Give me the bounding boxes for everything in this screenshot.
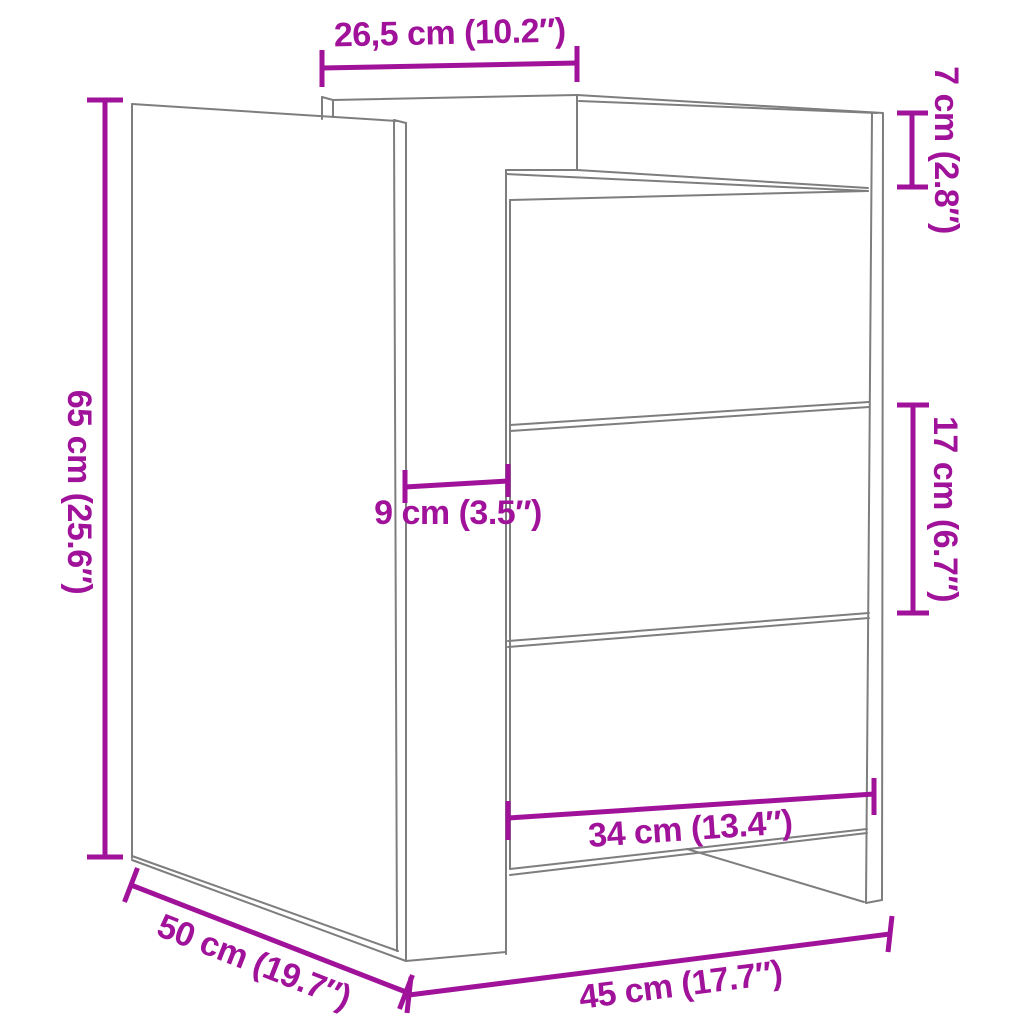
dimension-top-section-height xyxy=(897,113,928,187)
drawer-stack xyxy=(508,191,869,875)
side-panel-left xyxy=(132,104,506,961)
label-drawer-height: 17 cm (6.7″) xyxy=(926,416,964,602)
dimension-drawer-height xyxy=(897,405,929,613)
label-top-depth: 26,5 cm (10.2″) xyxy=(333,12,566,55)
label-top-section-height: 7 cm (2.8″) xyxy=(927,66,965,234)
dimension-diagram-page: 26,5 cm (10.2″) 7 cm (2.8″) 65 cm (25.6″… xyxy=(0,0,1024,1024)
side-panel-right xyxy=(687,114,883,903)
dimension-labels: 26,5 cm (10.2″) 7 cm (2.8″) 65 cm (25.6″… xyxy=(60,12,965,1017)
label-total-height: 65 cm (25.6″) xyxy=(60,390,98,594)
label-side-overhang: 9 cm (3.5″) xyxy=(374,494,542,532)
cabinet-dimension-diagram: 26,5 cm (10.2″) 7 cm (2.8″) 65 cm (25.6″… xyxy=(0,0,1024,1024)
